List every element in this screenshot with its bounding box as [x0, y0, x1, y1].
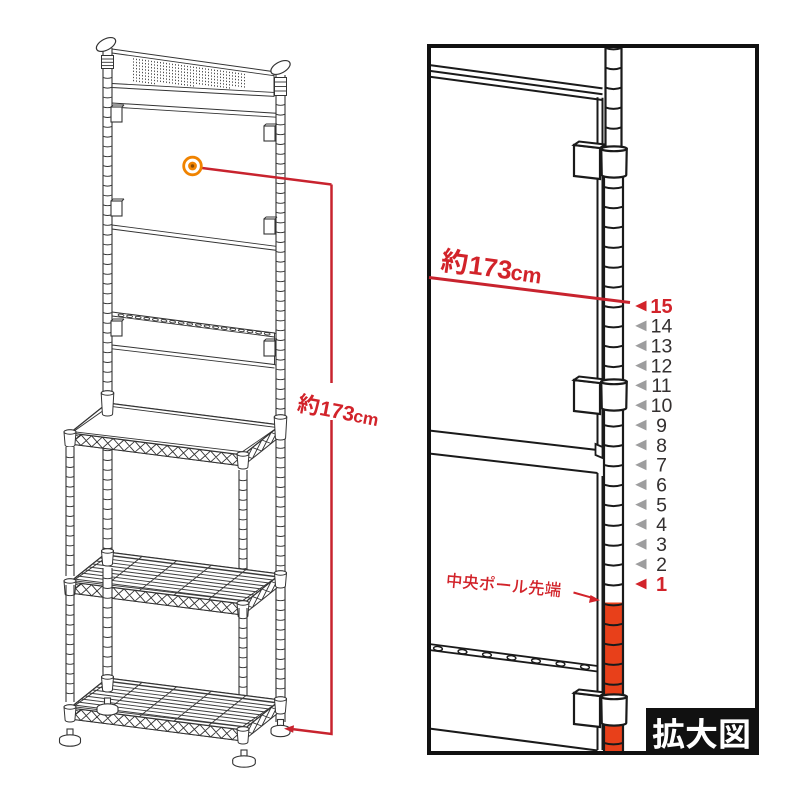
svg-text:2: 2 — [656, 554, 667, 576]
svg-text:13: 13 — [651, 336, 673, 358]
svg-text:3: 3 — [656, 534, 667, 556]
svg-text:12: 12 — [651, 355, 673, 377]
svg-text:5: 5 — [656, 494, 667, 516]
svg-text:7: 7 — [656, 455, 667, 477]
svg-text:15: 15 — [650, 296, 672, 318]
svg-text:8: 8 — [656, 435, 667, 457]
svg-text:6: 6 — [656, 475, 667, 497]
svg-text:4: 4 — [656, 514, 667, 536]
svg-text:cm: cm — [509, 260, 543, 288]
svg-text:9: 9 — [656, 415, 667, 437]
svg-text:10: 10 — [651, 395, 673, 417]
svg-text:11: 11 — [651, 375, 671, 397]
svg-text:173: 173 — [467, 250, 514, 286]
svg-text:1: 1 — [656, 574, 667, 596]
svg-text:14: 14 — [651, 316, 673, 338]
